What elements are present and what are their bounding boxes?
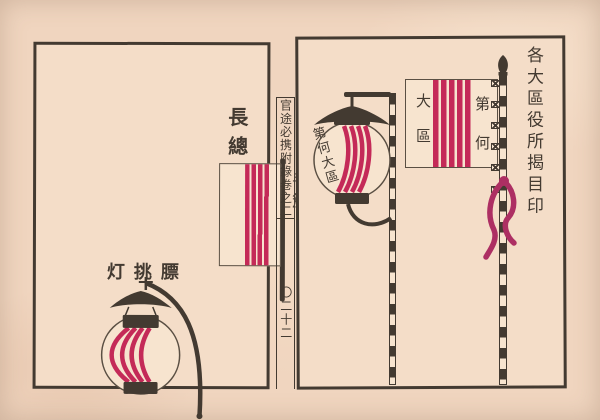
flag-tie bbox=[491, 101, 500, 108]
lantern-lower-arm bbox=[348, 204, 391, 224]
district-flag-text-right: 第何 bbox=[472, 96, 493, 174]
district-flag-text-left: 大區 bbox=[413, 93, 434, 163]
spine-title-box: 官途必携附錄卷之二 bbox=[276, 97, 295, 219]
flag-tie bbox=[491, 143, 500, 150]
flag-tie bbox=[491, 122, 500, 129]
finial-onion bbox=[498, 55, 508, 72]
tassel-strand bbox=[504, 181, 514, 243]
district-lantern-top-cap bbox=[334, 112, 370, 125]
book-title: 官途必携附錄卷之二 bbox=[280, 99, 292, 218]
bow-lantern-handle-tip bbox=[196, 413, 202, 419]
flag-tie bbox=[491, 80, 500, 87]
flag-pole-finial-icon bbox=[495, 54, 511, 76]
hand-flag-stripes bbox=[245, 164, 269, 265]
scanned-page: 長總 手簱 灯挑膘 官途必携附錄卷之二 bbox=[0, 0, 600, 420]
district-flag: 大區 第何 bbox=[405, 79, 498, 168]
left-panel: 長總 手簱 灯挑膘 bbox=[33, 42, 271, 390]
hand-flag bbox=[219, 163, 281, 266]
tassel-strand bbox=[486, 181, 504, 257]
section-heading: 長總 bbox=[228, 101, 267, 159]
pole-tassel bbox=[483, 170, 529, 282]
bow-lantern-top-cap bbox=[123, 315, 159, 328]
district-flag-stripes bbox=[433, 80, 471, 167]
finial-collar bbox=[499, 72, 508, 76]
page-number: 〇二十二 bbox=[276, 286, 295, 340]
bow-lantern-illustration bbox=[90, 275, 215, 420]
district-lantern-bottom-cap bbox=[335, 193, 369, 204]
bow-lantern-bottom-cap bbox=[124, 382, 158, 394]
